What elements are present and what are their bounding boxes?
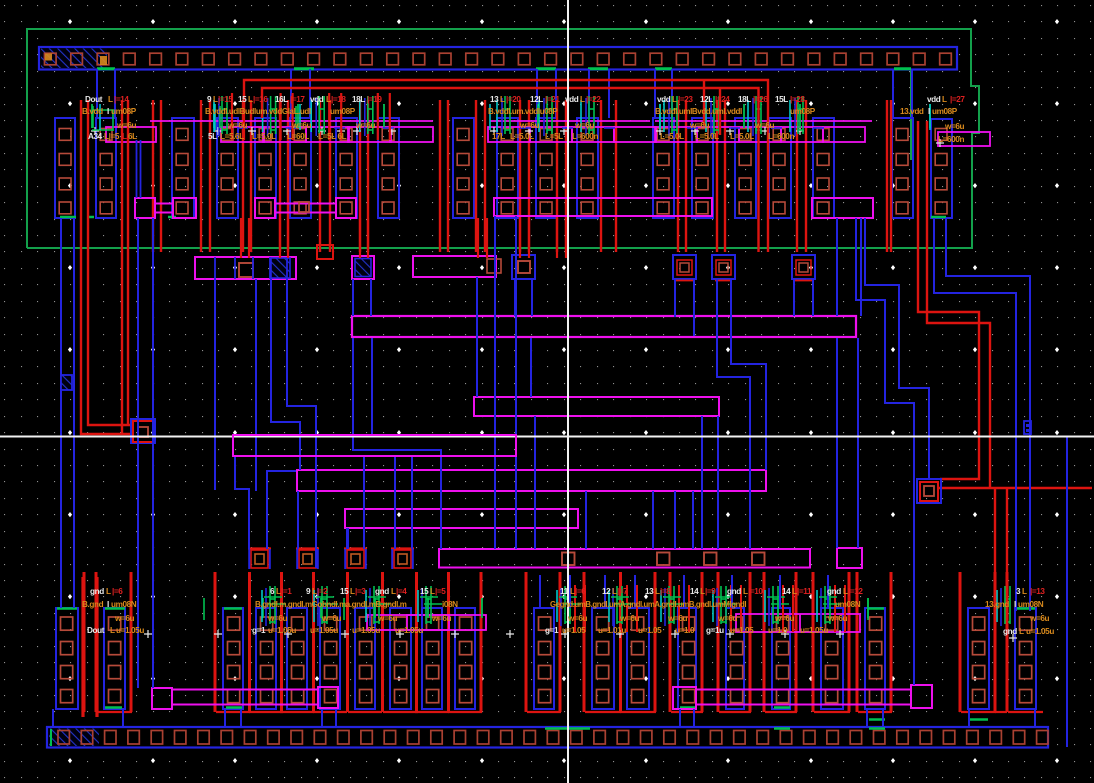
svg-text:5L: 5L xyxy=(208,132,217,141)
svg-text:u=1.05u: u=1.05u xyxy=(395,626,423,635)
svg-text:16L: 16L xyxy=(275,95,288,104)
svg-text:L: L xyxy=(122,132,127,141)
svg-text:Dout: Dout xyxy=(87,626,105,635)
svg-text:15: 15 xyxy=(340,587,349,596)
svg-text:|=9: |=9 xyxy=(705,587,716,596)
svg-text:vdd: vdd xyxy=(310,95,324,104)
svg-text:B.vdd: B.vdd xyxy=(82,107,103,116)
svg-text:|=19: |=19 xyxy=(367,95,382,104)
svg-text:|=20: |=20 xyxy=(506,95,521,104)
svg-text:um08N: um08N xyxy=(835,600,861,609)
svg-text:L: L xyxy=(110,626,115,635)
svg-text:w=6u: w=6u xyxy=(227,121,248,130)
svg-text:gnd: gnd xyxy=(1003,627,1017,636)
svg-text:w=6u: w=6u xyxy=(1029,614,1050,623)
svg-text:|=6: |=6 xyxy=(575,587,586,596)
svg-text:B.vddI.umIBvdd.umI.vddI: B.vddI.umIBvdd.umI.vddI xyxy=(655,107,742,116)
svg-text:u=1.0: u=1.0 xyxy=(675,626,695,635)
svg-text:vdd: vdd xyxy=(927,95,941,104)
svg-text:gnd: gnd xyxy=(375,587,389,596)
svg-text:L: L xyxy=(580,95,585,104)
svg-text:L: L xyxy=(500,95,505,104)
svg-text:L=600n: L=600n xyxy=(572,132,598,141)
svg-text:gnd: gnd xyxy=(90,587,104,596)
svg-text:w=6u: w=6u xyxy=(567,614,588,623)
svg-text:17L: 17L xyxy=(492,132,505,141)
svg-text:u=1.0: u=1.0 xyxy=(768,626,788,635)
svg-text:L: L xyxy=(1022,587,1027,596)
svg-text:w=6u: w=6u xyxy=(321,614,342,623)
svg-text:L=5.0L: L=5.0L xyxy=(660,132,684,141)
svg-text:w=6u: w=6u xyxy=(267,614,288,623)
svg-text:u=1.05u: u=1.05u xyxy=(116,626,144,635)
svg-text:|=18: |=18 xyxy=(331,95,346,104)
svg-text:L=60L: L=60L xyxy=(287,132,309,141)
svg-text:|=16: |=16 xyxy=(253,95,268,104)
svg-text:w=6u: w=6u xyxy=(114,614,135,623)
svg-text:L=600n: L=600n xyxy=(768,132,794,141)
svg-text:B.vddI.udIBudIum.vddGlaL.udI: B.vddI.udIBudIum.vddGlaL.udI xyxy=(205,107,311,116)
svg-text:w=6u: w=6u xyxy=(667,614,688,623)
svg-text:B.gndI.m.gndI.mGobndI.ma.gndI.: B.gndI.m.gndI.mGobndI.ma.gndI.mB.gndI.m xyxy=(255,600,407,609)
svg-text:um08N: um08N xyxy=(111,600,137,609)
svg-text:|=12: |=12 xyxy=(848,587,863,596)
svg-text:u=1.01u: u=1.01u xyxy=(598,626,626,635)
svg-text:u=1.05u: u=1.05u xyxy=(268,626,296,635)
svg-text:I: I xyxy=(107,107,109,116)
svg-text:L=5.0L: L=5.0L xyxy=(510,132,534,141)
svg-text:|=17: |=17 xyxy=(290,95,305,104)
svg-text:L=600n: L=600n xyxy=(938,135,964,144)
svg-text:u=1.05u: u=1.05u xyxy=(1026,627,1054,636)
svg-text:w=6u: w=6u xyxy=(431,614,452,623)
svg-text:18L: 18L xyxy=(352,95,365,104)
svg-text:|=7: |=7 xyxy=(617,587,628,596)
svg-text:w=6u: w=6u xyxy=(774,614,795,623)
svg-text:13: 13 xyxy=(490,95,499,104)
svg-text:w=6u: w=6u xyxy=(689,121,710,130)
svg-text:gnd: gnd xyxy=(727,587,741,596)
svg-text:u=1.05: u=1.05 xyxy=(562,626,586,635)
svg-text:|=22: |=22 xyxy=(586,95,601,104)
svg-text:L=5.0L: L=5.0L xyxy=(695,132,719,141)
svg-text:w=6u: w=6u xyxy=(116,121,137,130)
svg-text:g=1: g=1 xyxy=(252,626,266,635)
svg-text:Dout: Dout xyxy=(85,95,103,104)
svg-text:L: L xyxy=(672,95,677,104)
svg-text:I: I xyxy=(107,600,109,609)
svg-text:u=1.05: u=1.05 xyxy=(730,626,754,635)
svg-text:um08P: um08P xyxy=(790,107,816,116)
svg-text:|=14: |=14 xyxy=(114,95,129,104)
svg-text:|=15: |=15 xyxy=(218,95,233,104)
svg-text:Gegnd.umB.gndI.umA.gndI.umA.gn: Gegnd.umB.gndI.umA.gndI.umA.gndI.umB.gnd… xyxy=(550,600,746,609)
svg-text:|=4: |=4 xyxy=(396,587,407,596)
svg-text:w=6u: w=6u xyxy=(754,121,775,130)
svg-text:L=5L: L=5L xyxy=(545,132,563,141)
svg-text:L=5.0L: L=5.0L xyxy=(252,132,276,141)
svg-text:gnd: gnd xyxy=(827,587,841,596)
svg-text:|=2: |=2 xyxy=(317,587,328,596)
svg-text:15: 15 xyxy=(238,95,247,104)
svg-text:um08P: um08P xyxy=(932,107,958,116)
svg-text:u=1.05u: u=1.05u xyxy=(800,626,828,635)
svg-text:w=6u: w=6u xyxy=(519,121,540,130)
svg-text:L=5.0L: L=5.0L xyxy=(730,132,754,141)
svg-text:w=6u: w=6u xyxy=(574,121,595,130)
svg-text:6L: 6L xyxy=(128,132,137,141)
svg-text:L=5.6L: L=5.6L xyxy=(220,132,244,141)
svg-text:15L: 15L xyxy=(775,95,788,104)
svg-text:14: 14 xyxy=(690,587,699,596)
svg-text:w=6u: w=6u xyxy=(291,121,312,130)
svg-text:um08P: um08P xyxy=(111,107,137,116)
svg-text:w=6u: w=6u xyxy=(619,614,640,623)
svg-text:um08N: um08N xyxy=(1018,600,1044,609)
svg-text:g=1u: g=1u xyxy=(706,626,724,635)
svg-text:A34: A34 xyxy=(88,132,103,141)
svg-text:|=21: |=21 xyxy=(545,95,560,104)
svg-text:I: I xyxy=(928,107,930,116)
svg-text:B.vddI.um.vddIu08P: B.vddI.um.vddIu08P xyxy=(488,107,558,116)
svg-text:w=6u: w=6u xyxy=(355,121,376,130)
svg-text:15: 15 xyxy=(420,587,429,596)
svg-text:w=6u: w=6u xyxy=(827,614,848,623)
svg-text:13.gnd: 13.gnd xyxy=(985,600,1009,609)
svg-text:|=8: |=8 xyxy=(660,587,671,596)
svg-text:vdd: vdd xyxy=(565,95,579,104)
svg-text:|=26: |=26 xyxy=(753,95,768,104)
svg-text:L: L xyxy=(1019,627,1024,636)
svg-text:|=28: |=28 xyxy=(790,95,805,104)
svg-text:18L: 18L xyxy=(738,95,751,104)
svg-text:12: 12 xyxy=(602,587,611,596)
svg-text:B.gnd: B.gnd xyxy=(82,600,104,609)
svg-text:13: 13 xyxy=(645,587,654,596)
svg-text:i08N: i08N xyxy=(442,600,458,609)
svg-text:13.vdd: 13.vdd xyxy=(900,107,924,116)
svg-text:w=6u: w=6u xyxy=(717,614,738,623)
svg-text:L|=5: L|=5 xyxy=(104,132,120,141)
svg-text:u=1.05u: u=1.05u xyxy=(310,626,338,635)
svg-text:u=1.05u: u=1.05u xyxy=(352,626,380,635)
svg-text:12L: 12L xyxy=(530,95,543,104)
svg-text:11: 11 xyxy=(560,587,569,596)
svg-text:|=6: |=6 xyxy=(112,587,123,596)
svg-text:w=6u: w=6u xyxy=(377,614,398,623)
svg-text:|=24: |=24 xyxy=(715,95,730,104)
svg-text:L: L xyxy=(108,95,113,104)
svg-text:g=1: g=1 xyxy=(545,626,559,635)
svg-text:L: L xyxy=(106,587,111,596)
svg-text:|=1: |=1 xyxy=(281,587,292,596)
svg-text:|=13: |=13 xyxy=(1030,587,1045,596)
svg-text:|=27: |=27 xyxy=(950,95,965,104)
svg-text:|=23: |=23 xyxy=(678,95,693,104)
svg-text:u=1.05: u=1.05 xyxy=(638,626,662,635)
svg-text:|=11: |=11 xyxy=(797,587,812,596)
svg-text:|=10: |=10 xyxy=(748,587,763,596)
svg-text:|=5: |=5 xyxy=(435,587,446,596)
svg-text:vdd: vdd xyxy=(657,95,671,104)
svg-text:14: 14 xyxy=(782,587,791,596)
svg-text:L: L xyxy=(942,95,947,104)
svg-text:um08P: um08P xyxy=(330,107,356,116)
svg-text:L=5L 6L: L=5L 6L xyxy=(318,132,347,141)
svg-text:12L: 12L xyxy=(700,95,713,104)
svg-text:w=6u: w=6u xyxy=(944,122,965,131)
svg-text:I: I xyxy=(1014,600,1016,609)
svg-text:|=3: |=3 xyxy=(355,587,366,596)
